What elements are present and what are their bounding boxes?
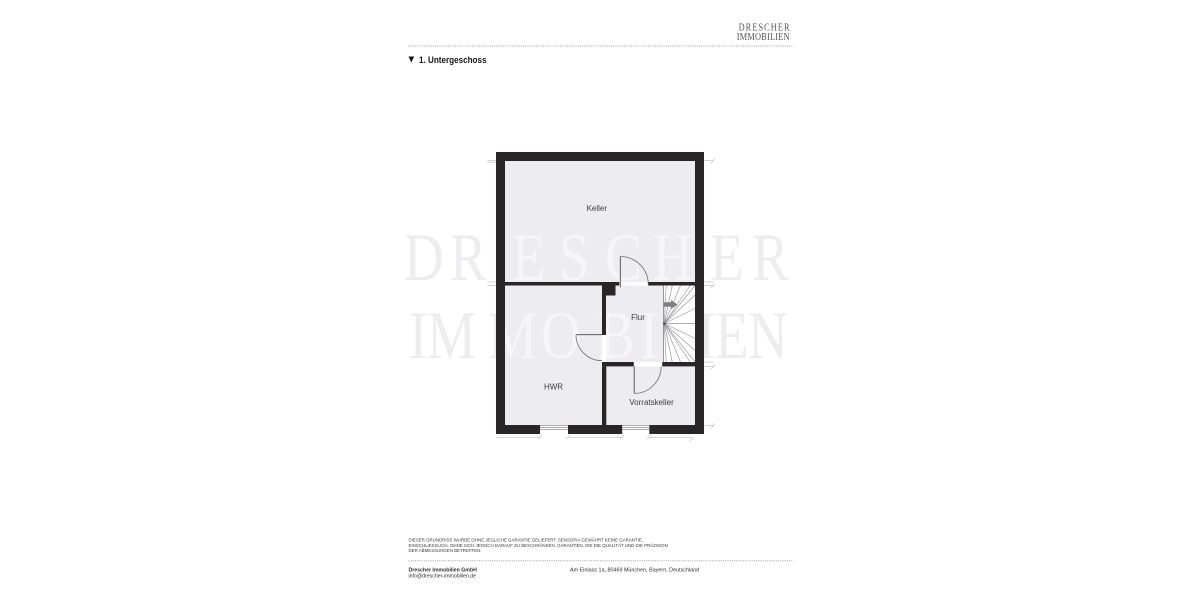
svg-text:Keller: Keller	[587, 204, 608, 213]
svg-text:Vorratskeller: Vorratskeller	[629, 398, 674, 407]
svg-text:Am Einlass 1a, 80469 München,: Am Einlass 1a, 80469 München, Bayern, De…	[570, 567, 699, 573]
svg-text:EINSCHLIESSLICH, OHNE SICH JED: EINSCHLIESSLICH, OHNE SICH JEDOCH DARAUF…	[409, 543, 668, 548]
svg-text:1. Untergeschoss: 1. Untergeschoss	[419, 55, 487, 65]
svg-text:DER ABMESSUNGEN BETREFFEN.: DER ABMESSUNGEN BETREFFEN.	[409, 548, 482, 553]
svg-text:Drescher Immobilien GmbH: Drescher Immobilien GmbH	[409, 567, 478, 573]
svg-text:IMMOBILIEN: IMMOBILIEN	[737, 31, 790, 43]
svg-text:HWR: HWR	[544, 383, 563, 392]
svg-text:DIESER GRUNDRISS WURDE OHNE JE: DIESER GRUNDRISS WURDE OHNE JEGLICHE GAR…	[409, 537, 643, 542]
svg-text:info@drescher-immobilien.de: info@drescher-immobilien.de	[409, 574, 477, 580]
svg-text:Flur: Flur	[631, 313, 645, 322]
